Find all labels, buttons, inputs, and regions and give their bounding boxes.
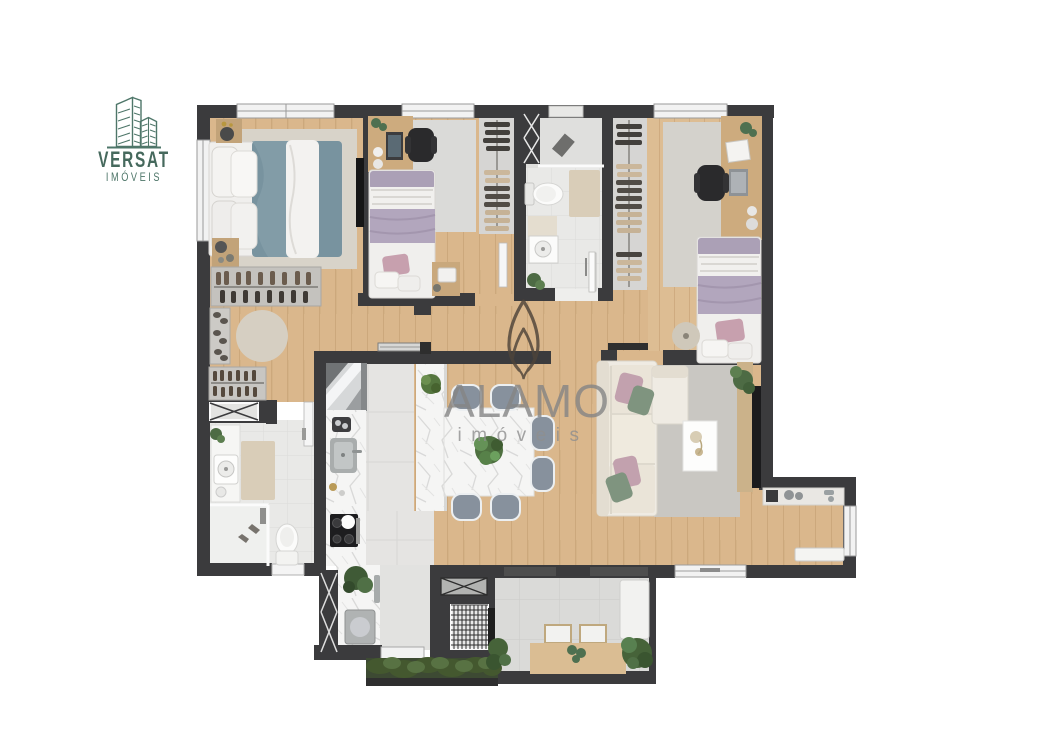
svg-text:IMÓVEIS: IMÓVEIS [106, 170, 162, 184]
svg-text:ALAMO: ALAMO [444, 375, 610, 427]
svg-text:imóveis: imóveis [458, 425, 589, 446]
svg-text:VERSAT: VERSAT [98, 148, 170, 172]
